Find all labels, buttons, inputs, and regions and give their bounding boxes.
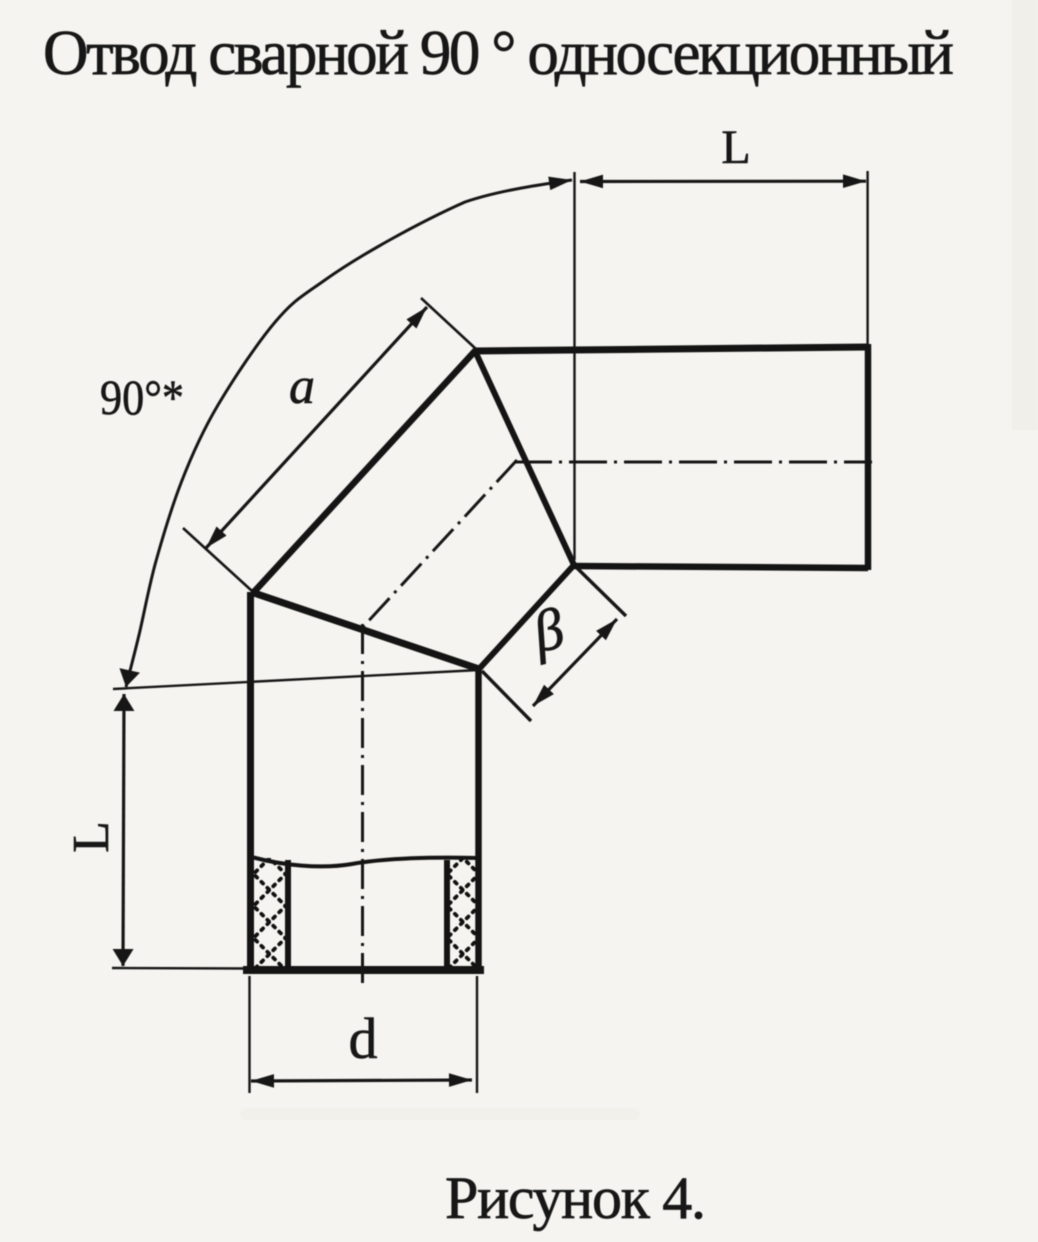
svg-text:L: L xyxy=(63,821,120,853)
svg-text:90°*: 90°* xyxy=(100,369,184,425)
svg-text:a: a xyxy=(289,358,315,415)
svg-text:Рисунок 4.: Рисунок 4. xyxy=(445,1165,706,1231)
svg-text:L: L xyxy=(721,121,750,174)
svg-text:Отвод сварной 90 ° односекцион: Отвод сварной 90 ° односекционный xyxy=(43,18,954,88)
svg-text:d: d xyxy=(349,1006,378,1071)
